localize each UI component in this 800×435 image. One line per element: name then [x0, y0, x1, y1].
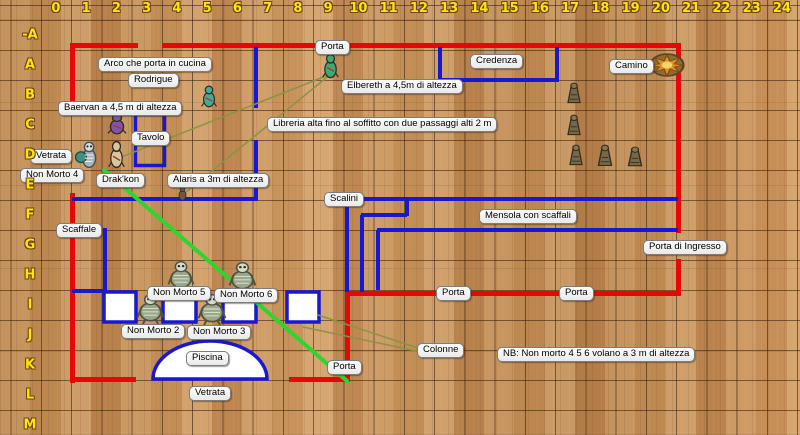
label-porta-ingresso[interactable]: Porta di Ingresso	[643, 240, 727, 255]
label-libreria[interactable]: Libreria alta fino al soffitto con due p…	[267, 117, 497, 132]
label-porta-piscina[interactable]: Porta	[327, 360, 362, 375]
label-porta-nord[interactable]: Porta	[315, 40, 350, 55]
label-non-morto-4[interactable]: Non Morto 4	[20, 168, 84, 183]
label-scalini[interactable]: Scalini	[324, 192, 364, 207]
label-tavolo[interactable]: Tavolo	[131, 131, 170, 146]
label-credenza[interactable]: Credenza	[470, 54, 523, 69]
label-vetrata-sud[interactable]: Vetrata	[189, 386, 231, 401]
label-porta-sud-2[interactable]: Porta	[559, 286, 594, 301]
label-arco-cucina[interactable]: Arco che porta in cucina	[98, 57, 212, 72]
label-vetrata-ovest[interactable]: Vetrata	[30, 149, 72, 164]
label-drakkon[interactable]: Drak'kon	[96, 173, 145, 188]
label-camino[interactable]: Camino	[609, 59, 654, 74]
label-rodrigue[interactable]: Rodrigue	[128, 73, 179, 88]
label-non-morto-5[interactable]: Non Morto 5	[147, 286, 211, 301]
token-camino[interactable]	[651, 54, 684, 76]
label-alaris[interactable]: Alaris a 3m di altezza	[167, 173, 269, 188]
label-non-morto-3[interactable]: Non Morto 3	[187, 325, 251, 340]
label-mensola[interactable]: Mensola con scaffali	[479, 209, 577, 224]
label-non-morto-2[interactable]: Non Morto 2	[121, 324, 185, 339]
label-baervan[interactable]: Baervan a 4,5 m di altezza	[58, 101, 182, 116]
label-piscina[interactable]: Piscina	[186, 351, 229, 366]
label-elbereth[interactable]: Elbereth a 4,5m di altezza	[341, 79, 463, 94]
label-porta-sud-1[interactable]: Porta	[436, 286, 471, 301]
label-nb-volano[interactable]: NB: Non morto 4 5 6 volano a 3 m di alte…	[497, 347, 695, 362]
map-canvas[interactable]: PortaArco che porta in cucinaRodrigueBae…	[0, 0, 800, 435]
label-scaffale[interactable]: Scaffale	[56, 223, 102, 238]
label-colonne[interactable]: Colonne	[417, 343, 464, 358]
label-non-morto-6[interactable]: Non Morto 6	[214, 288, 278, 303]
